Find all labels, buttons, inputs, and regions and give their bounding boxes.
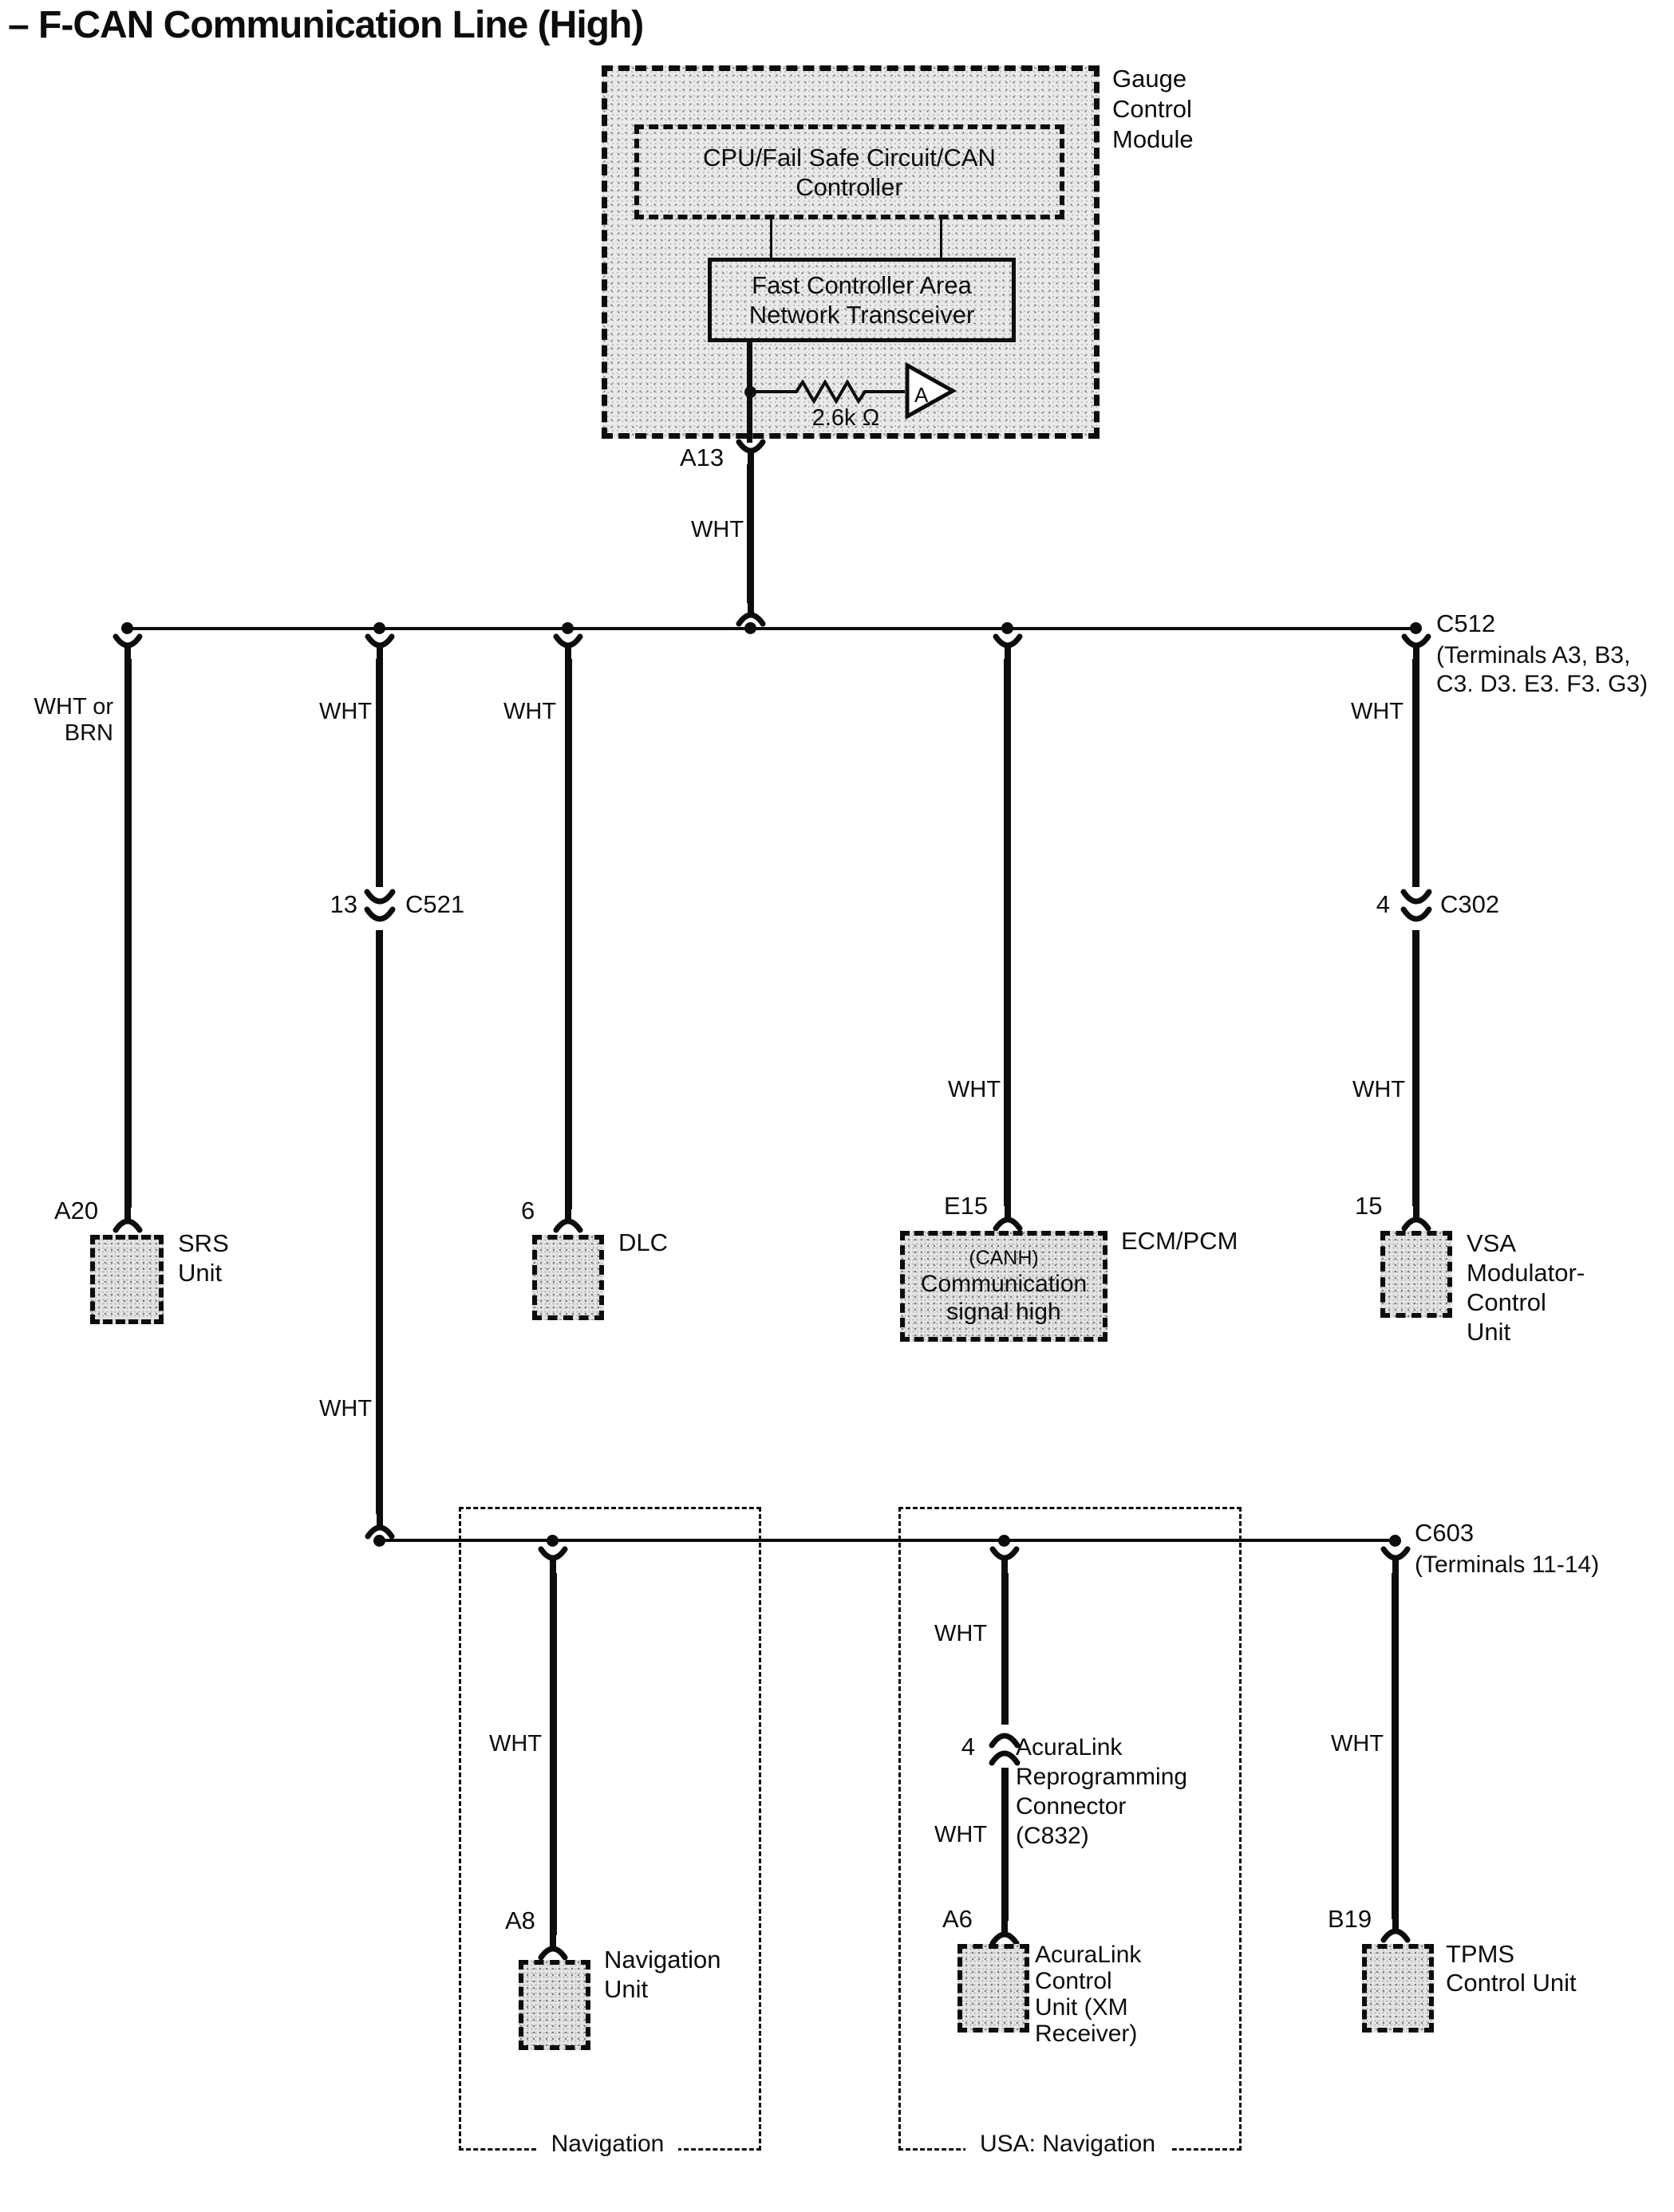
srs-wire-color-label: WHT or BRN bbox=[30, 694, 113, 747]
a13-wire bbox=[747, 464, 754, 603]
fast-can-transceiver-text: Fast Controller Area Network Transceiver bbox=[749, 270, 975, 329]
tpms-pin-label: B19 bbox=[1328, 1905, 1372, 1934]
nav-branch-fork-icon bbox=[538, 1546, 568, 1573]
bus-dot-dlc bbox=[562, 622, 574, 634]
c521-inline-connector-icon bbox=[362, 887, 397, 930]
amplifier-label: A bbox=[914, 380, 928, 409]
ecm-branch-fork-icon bbox=[993, 633, 1023, 660]
vsa-box-fork-icon bbox=[1401, 1205, 1431, 1232]
acuralink-wire-color-upper: WHT bbox=[934, 1619, 987, 1648]
ecm-wire-color-label: WHT bbox=[948, 1075, 1001, 1104]
resistor-lead-right bbox=[878, 390, 905, 393]
tpms-wire bbox=[1392, 1573, 1399, 1919]
acuralink-unit-box bbox=[957, 1944, 1029, 2033]
ecm-canh-text: (CANH) bbox=[969, 1247, 1039, 1270]
navigation-region-label: Navigation bbox=[537, 2128, 679, 2160]
ecm-signal-box: (CANH) Communication signal high bbox=[900, 1231, 1107, 1342]
gauge-module-pin-label: A13 bbox=[680, 444, 724, 472]
srs-unit-label: SRS Unit bbox=[178, 1228, 229, 1287]
c521-branch-fork-icon bbox=[365, 633, 395, 660]
nav-wire-color-label: WHT bbox=[489, 1729, 542, 1758]
tpms-wire-color-label: WHT bbox=[1331, 1729, 1384, 1758]
navigation-region-frame bbox=[459, 1507, 761, 2151]
c603-branch-fork-icon bbox=[1380, 1546, 1411, 1573]
bus-dot-a13 bbox=[744, 622, 756, 634]
usa-navigation-region-label: USA: Navigation bbox=[965, 2128, 1170, 2160]
nav-wire bbox=[550, 1573, 557, 1935]
nav-box-fork-icon bbox=[538, 1934, 568, 1961]
dlc-box-fork-icon bbox=[553, 1206, 583, 1233]
navigation-unit-label: Navigation Unit bbox=[604, 1945, 721, 2004]
dlc-wire-color-label: WHT bbox=[503, 697, 556, 726]
acuralink-wire-upper bbox=[1001, 1573, 1009, 1725]
nav-pin-label: A8 bbox=[505, 1906, 535, 1935]
c521-name: C521 bbox=[405, 890, 464, 919]
ecm-wire bbox=[1004, 659, 1011, 1206]
c832-pin: 4 bbox=[951, 1733, 975, 1761]
vsa-wire-lower bbox=[1412, 930, 1419, 1206]
dlc-branch-fork-icon bbox=[553, 633, 583, 660]
acuralink-wire-lower bbox=[1001, 1768, 1009, 1921]
c512-branch-fork-icon bbox=[1401, 633, 1431, 660]
cpu-failsafe-can-controller-box: CPU/Fail Safe Circuit/CAN Controller bbox=[634, 124, 1064, 219]
c512-name: C512 bbox=[1436, 609, 1495, 638]
c302-pin: 4 bbox=[1355, 890, 1390, 919]
c521-wire-color-lower: WHT bbox=[319, 1394, 372, 1423]
ecm-pin-label: E15 bbox=[944, 1192, 988, 1220]
vsa-unit-label: VSA Modulator- Control Unit bbox=[1467, 1228, 1585, 1347]
lower-bus-dot-c521 bbox=[373, 1535, 385, 1547]
dlc-wire bbox=[565, 659, 572, 1209]
srs-pin-label: A20 bbox=[54, 1197, 98, 1225]
dlc-pin-label: 6 bbox=[521, 1197, 535, 1225]
cpu-failsafe-can-controller-text: CPU/Fail Safe Circuit/CAN Controller bbox=[703, 143, 996, 202]
navigation-region-label-wrap: Navigation bbox=[459, 2128, 756, 2160]
acuralink-pin-label: A6 bbox=[942, 1905, 973, 1934]
acuralink-box-fork-icon bbox=[989, 1919, 1020, 1946]
amplifier-triangle-icon bbox=[905, 363, 956, 419]
resistor-lead-left bbox=[752, 390, 788, 393]
ecm-box-fork-icon bbox=[993, 1205, 1023, 1232]
c521-pin: 13 bbox=[322, 890, 357, 919]
dlc-box bbox=[532, 1235, 604, 1320]
a13-wire-color-label: WHT bbox=[691, 515, 744, 544]
bus-dot-c521 bbox=[373, 622, 385, 634]
vsa-wire-color-upper: WHT bbox=[1351, 697, 1404, 726]
acuralink-wire-color-lower: WHT bbox=[934, 1820, 987, 1849]
tpms-box-fork-icon bbox=[1380, 1916, 1411, 1943]
page-title: – F-CAN Communication Line (High) bbox=[8, 3, 643, 47]
acuralink-branch-fork-icon bbox=[989, 1546, 1020, 1573]
resistor-value-label: 2.6k Ω bbox=[798, 404, 894, 432]
cpu-to-transceiver-line-left bbox=[770, 219, 772, 258]
srs-branch-fork-icon bbox=[113, 633, 143, 660]
vsa-wire-upper bbox=[1412, 659, 1419, 887]
bus-dot-ecm bbox=[1001, 622, 1013, 634]
srs-box-fork-icon bbox=[113, 1206, 143, 1233]
c521-wire-lower bbox=[376, 930, 383, 1514]
vsa-wire-color-lower: WHT bbox=[1352, 1075, 1405, 1104]
dlc-label: DLC bbox=[618, 1228, 668, 1257]
fast-can-transceiver-box: Fast Controller Area Network Transceiver bbox=[708, 258, 1016, 342]
cpu-to-transceiver-line-right bbox=[940, 219, 942, 258]
ecm-label: ECM/PCM bbox=[1121, 1227, 1238, 1256]
top-bus-line bbox=[128, 627, 1417, 630]
c302-name: C302 bbox=[1440, 890, 1499, 919]
navigation-unit-box bbox=[519, 1960, 590, 2050]
acuralink-unit-label: AcuraLink Control Unit (XM Receiver) bbox=[1035, 1942, 1141, 2047]
lower-bus-line bbox=[380, 1539, 1396, 1542]
usa-navigation-region-label-wrap: USA: Navigation bbox=[898, 2128, 1237, 2160]
a13-connector-fork-icon bbox=[736, 439, 766, 466]
gauge-control-module-label: Gauge Control Module bbox=[1112, 64, 1194, 155]
srs-wire bbox=[124, 659, 132, 1208]
lower-bus-dot-nav bbox=[547, 1535, 559, 1547]
resistor-icon bbox=[788, 380, 878, 404]
c302-inline-connector-icon bbox=[1399, 887, 1434, 930]
ecm-signal-text: Communication signal high bbox=[921, 1270, 1087, 1326]
lower-bus-dot-acuralink bbox=[998, 1535, 1010, 1547]
c521-wire-upper bbox=[376, 659, 383, 887]
c512-terminals: (Terminals A3, B3, C3. D3. E3. F3. G3) bbox=[1436, 641, 1648, 699]
c521-wire-color-upper: WHT bbox=[319, 697, 372, 726]
bus-dot-c512 bbox=[1410, 622, 1422, 634]
tpms-unit-box bbox=[1362, 1944, 1434, 2033]
lower-bus-dot-c603 bbox=[1389, 1535, 1401, 1547]
c603-name: C603 bbox=[1415, 1519, 1474, 1548]
c832-label: AcuraLink Reprogramming Connector (C832) bbox=[1016, 1733, 1187, 1851]
vsa-unit-box bbox=[1380, 1231, 1452, 1318]
srs-unit-box bbox=[90, 1235, 164, 1324]
wiring-diagram: – F-CAN Communication Line (High) Naviga… bbox=[0, 0, 1674, 2212]
tpms-unit-label: TPMS Control Unit bbox=[1446, 1940, 1577, 1997]
vsa-pin-label: 15 bbox=[1355, 1192, 1382, 1220]
c603-terminals: (Terminals 11-14) bbox=[1415, 1551, 1599, 1579]
bus-dot-srs bbox=[121, 622, 133, 634]
